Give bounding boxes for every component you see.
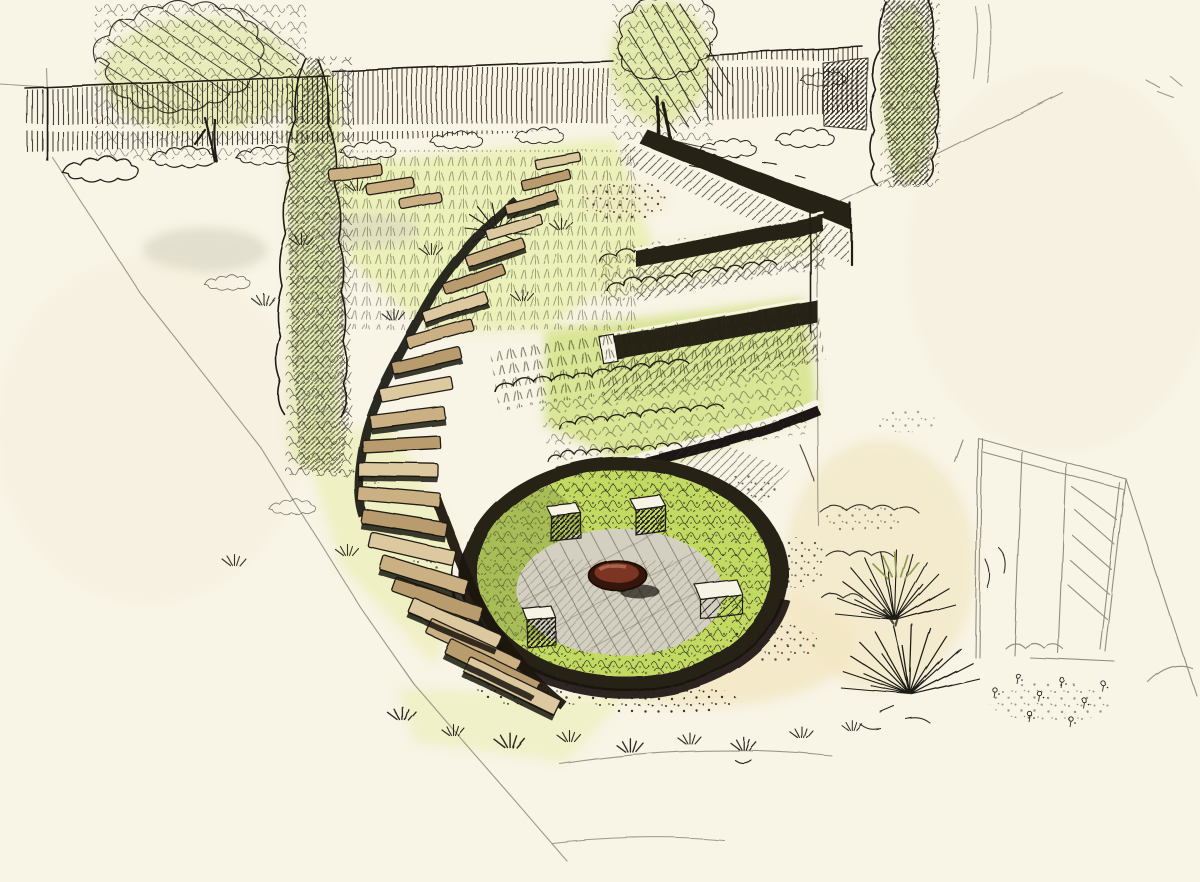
cypress-tree-right <box>870 0 940 188</box>
sketch-canvas <box>0 0 1200 882</box>
deciduous-tree <box>94 0 305 162</box>
garden-sketch <box>0 0 1200 882</box>
